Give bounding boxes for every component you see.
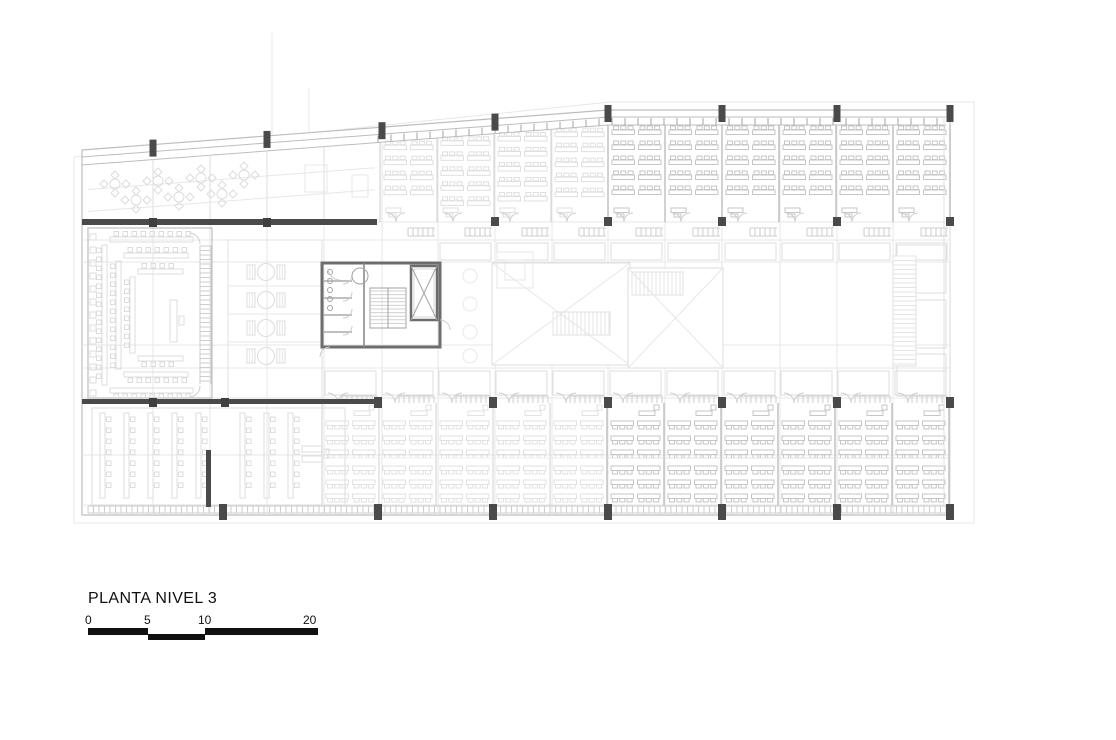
drawing-sheet: PLANTA NIVEL 3 0 5 10 20 <box>0 0 1116 740</box>
plan-title: PLANTA NIVEL 3 <box>88 590 217 608</box>
scale-label-10: 10 <box>198 613 211 627</box>
scale-label-0: 0 <box>85 613 92 627</box>
scale-bar-bars <box>88 628 318 642</box>
atrium-voids <box>492 263 723 368</box>
scale-segment-5-10 <box>148 634 205 640</box>
scale-segment-10-20 <box>205 628 318 635</box>
scale-label-20: 20 <box>303 613 316 627</box>
scale-segment-0-5 <box>88 628 148 635</box>
scale-bar-labels: 0 5 10 20 <box>88 613 318 626</box>
scale-label-5: 5 <box>144 613 151 627</box>
scale-bar: 0 5 10 20 <box>88 613 318 643</box>
